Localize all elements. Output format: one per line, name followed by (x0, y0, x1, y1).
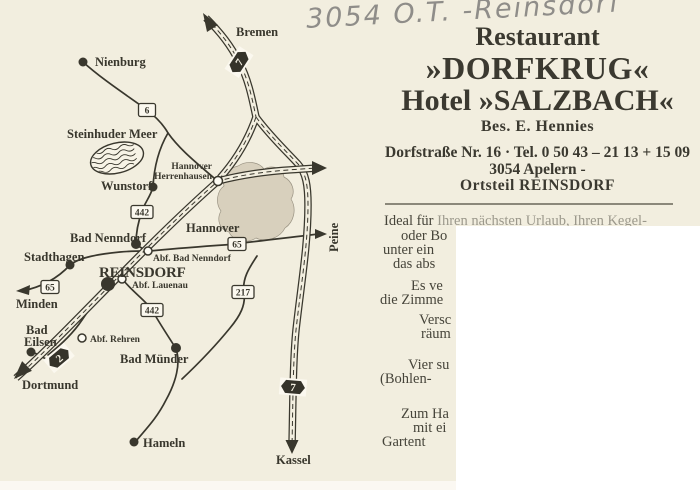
badge-b442-south: 442 (141, 304, 163, 317)
label-bremen: Bremen (236, 25, 278, 39)
address-district: Ortsteil REINSDORF (375, 177, 700, 195)
road-217 (182, 256, 257, 379)
label-dortmund: Dortmund (22, 378, 78, 392)
white-cover-overlay (456, 226, 700, 490)
badge-b442-north: 442 (131, 206, 153, 219)
title-dorfkrug: »DORFKRUG« (375, 50, 700, 87)
body-line-1-start: Ideal für (384, 213, 437, 229)
body-fragment: Gartent (382, 434, 425, 451)
label-wunstorf: Wunstorf (101, 179, 153, 193)
title-hotel-salzbach: Hotel »SALZBACH« (375, 84, 700, 118)
badge-b217: 217 (232, 286, 254, 299)
label-bad-muender: Bad Münder (120, 352, 189, 366)
label-kassel: Kassel (276, 453, 311, 467)
interchange-abf-bad-nenndorf (144, 247, 152, 255)
interchange-herrenhausen (214, 177, 223, 186)
owner-line: Bes. E. Hennies (375, 118, 700, 136)
interchange-abf-rehren (78, 334, 86, 342)
road-map: 6 442 65 65 217 442 (0, 0, 360, 490)
arrow-peine (315, 229, 327, 239)
label-abf-bad-nenndorf: Abf. Bad Nenndorf (153, 254, 232, 264)
badge-b217-number: 217 (236, 289, 251, 299)
postcard: 6 442 65 65 217 442 (0, 0, 700, 490)
shield-a7-south: 7 (279, 377, 307, 396)
label-nienburg: Nienburg (95, 55, 146, 69)
body-fragment: die Zimme (380, 292, 443, 309)
label-abf-rehren: Abf. Rehren (90, 335, 141, 345)
label-hameln: Hameln (143, 436, 185, 450)
label-steinhuder-meer: Steinhuder Meer (67, 127, 158, 141)
badge-b6-number: 6 (145, 107, 150, 117)
label-hannover: Hannover (186, 221, 240, 235)
dot-hameln (130, 438, 139, 447)
arrow-east (312, 161, 327, 175)
arrow-kassel (286, 440, 299, 454)
badge-b65-west: 65 (41, 281, 59, 294)
label-reinsdorf: REINSDORF (99, 265, 186, 281)
badge-b65-east-number: 65 (232, 241, 242, 251)
badge-b442-north-number: 442 (135, 209, 150, 219)
divider-rule (385, 203, 673, 205)
label-stadthagen: Stadthagen (24, 250, 84, 264)
dot-nienburg (79, 58, 88, 67)
label-peine: Peine (327, 222, 341, 252)
badge-b442-south-number: 442 (145, 307, 160, 317)
label-minden: Minden (16, 297, 58, 311)
label-bad-nenndorf: Bad Nenndorf (70, 231, 147, 245)
label-bad-eilsen-2: Eilsen (24, 335, 57, 349)
label-hannover-herrenhausen-2: Herrenhausen (154, 172, 213, 182)
badge-b6: 6 (139, 104, 156, 117)
body-fragment: (Bohlen- (380, 371, 432, 388)
body-fragment: räum (421, 326, 451, 343)
lake-steinhuder-meer (85, 137, 147, 180)
body-fragment: das abs (393, 256, 435, 273)
road-6 (83, 62, 168, 133)
label-abf-lauenau: Abf. Lauenau (132, 281, 189, 291)
title-restaurant: Restaurant (375, 22, 700, 52)
arrow-minden (16, 285, 30, 295)
badge-b65-east: 65 (228, 238, 246, 251)
badge-b65-west-number: 65 (45, 284, 55, 294)
label-hannover-herrenhausen-1: Hannover (171, 162, 212, 172)
address-street-phone: Dorfstraße Nr. 16 · Tel. 0 50 43 – 21 13… (375, 144, 700, 162)
